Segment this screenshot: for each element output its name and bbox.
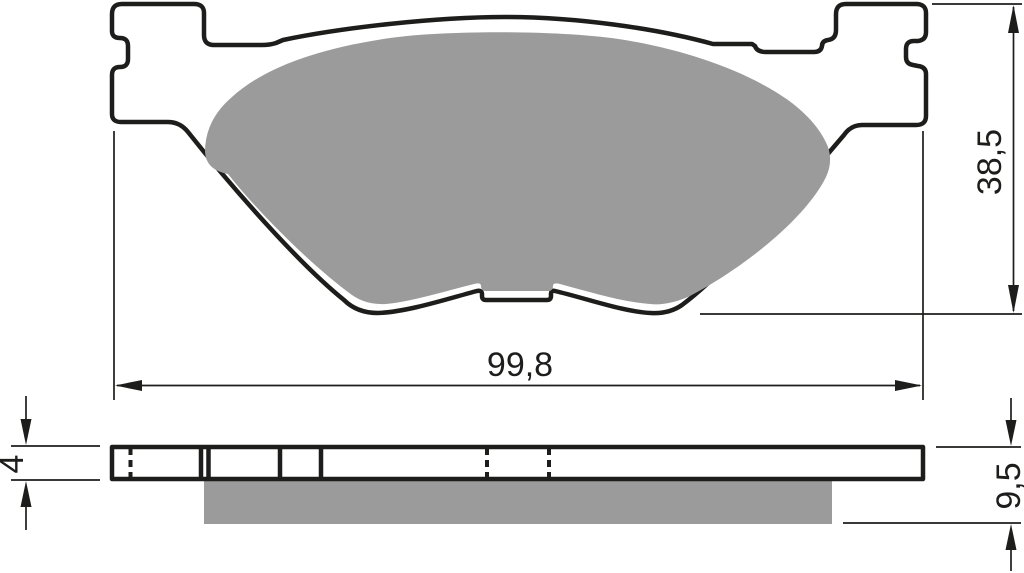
top-view xyxy=(112,4,926,313)
dimension-backplate-thickness: 4 xyxy=(0,396,100,530)
arrowhead-right xyxy=(895,380,922,391)
arrowhead-down xyxy=(21,419,32,445)
dimension-label: 99,8 xyxy=(487,346,553,384)
friction-material-top-view xyxy=(205,32,830,304)
arrowhead-top xyxy=(1008,5,1019,33)
arrowhead-bottom xyxy=(1008,285,1019,313)
dimension-label: 9,5 xyxy=(990,462,1024,509)
arrowhead-up xyxy=(1006,524,1017,550)
arrowhead-left xyxy=(115,380,142,391)
friction-material-side-view xyxy=(204,481,832,524)
backplate-side-view xyxy=(112,447,923,479)
dimension-total-thickness: 9,5 xyxy=(843,398,1024,571)
dimension-label: 38,5 xyxy=(971,129,1009,195)
side-view xyxy=(112,447,923,524)
brake-pad-technical-drawing: 99,8 38,5 4 9,5 xyxy=(0,0,1024,573)
arrowhead-up xyxy=(21,481,32,507)
arrowhead-down xyxy=(1006,420,1017,446)
drawing-canvas: 99,8 38,5 4 9,5 xyxy=(0,0,1024,573)
dimension-label: 4 xyxy=(0,455,31,474)
